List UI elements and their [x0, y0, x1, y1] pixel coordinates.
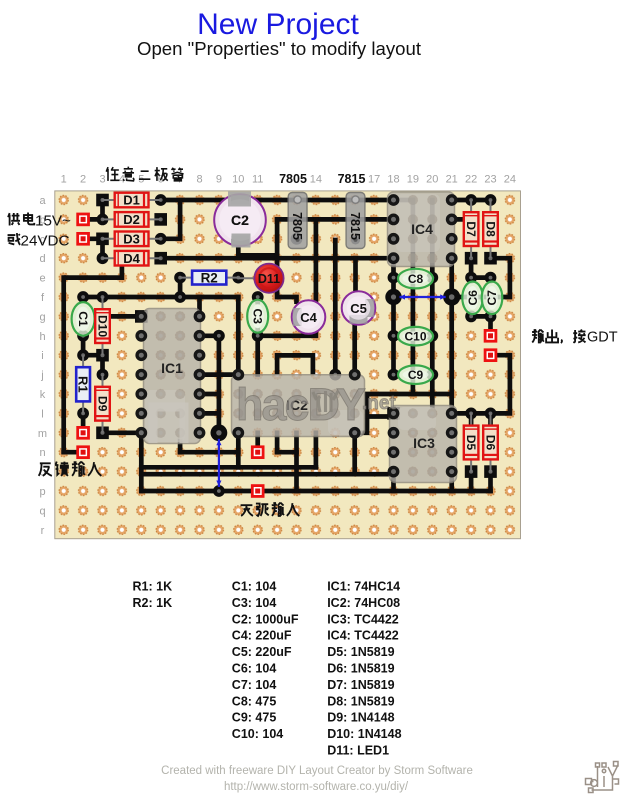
svg-text:7815: 7815 — [338, 172, 366, 186]
svg-text:C5: C5 — [350, 301, 367, 316]
svg-text:C1: C1 — [76, 311, 90, 327]
svg-text:D1: D1 — [123, 193, 140, 208]
svg-text:D9: D9 — [95, 396, 109, 412]
svg-text:D5: 1N5819: D5: 1N5819 — [327, 645, 394, 659]
svg-text:22: 22 — [465, 174, 477, 186]
svg-text:D9: 1N4148: D9: 1N4148 — [327, 711, 394, 725]
svg-text:R2: 1K: R2: 1K — [133, 596, 173, 610]
svg-text:D2: D2 — [123, 212, 140, 227]
svg-text:D10: 1N4148: D10: 1N4148 — [327, 727, 401, 741]
svg-text:IC4: IC4 — [411, 221, 433, 237]
svg-text:i: i — [41, 350, 43, 362]
svg-text:IC3: TC4422: IC3: TC4422 — [327, 612, 399, 626]
svg-text:D8: 1N5819: D8: 1N5819 — [327, 694, 394, 708]
svg-text:C2: C2 — [231, 212, 249, 228]
svg-text:19: 19 — [407, 174, 419, 186]
svg-text:C6: C6 — [466, 290, 480, 306]
svg-text:D11: LED1: D11: LED1 — [327, 744, 389, 758]
svg-text:23: 23 — [484, 174, 496, 186]
svg-text:h: h — [39, 331, 45, 343]
svg-text:1: 1 — [61, 174, 67, 186]
svg-text:a: a — [39, 195, 46, 207]
svg-text:C10: C10 — [404, 329, 426, 343]
svg-text:C9: C9 — [408, 368, 424, 382]
svg-text:C2: 1000uF: C2: 1000uF — [232, 612, 299, 626]
svg-text:http://www.storm-software.co.y: http://www.storm-software.co.yu/diy/ — [224, 781, 409, 793]
svg-text:8: 8 — [196, 174, 202, 186]
svg-text:D7: 1N5819: D7: 1N5819 — [327, 678, 394, 692]
svg-text:10: 10 — [232, 174, 244, 186]
svg-text:q: q — [39, 505, 45, 517]
svg-text:k: k — [40, 389, 46, 401]
svg-text:C6: 104: C6: 104 — [232, 662, 277, 676]
svg-text:m: m — [38, 428, 47, 440]
svg-text:D7: D7 — [464, 221, 478, 237]
svg-text:7805: 7805 — [279, 172, 307, 186]
svg-text:d: d — [39, 253, 45, 265]
svg-text:7805: 7805 — [290, 212, 304, 240]
svg-text:D6: D6 — [483, 435, 497, 451]
svg-text:.net: .net — [362, 393, 396, 414]
svg-text:IC2: 74HC08: IC2: 74HC08 — [327, 596, 400, 610]
svg-text:21: 21 — [446, 174, 458, 186]
svg-text:C1: 104: C1: 104 — [232, 580, 277, 594]
svg-text:15V~: 15V~ — [35, 213, 71, 230]
svg-text:IC1: 74HC14: IC1: 74HC14 — [327, 580, 400, 594]
svg-text:R1: R1 — [76, 376, 91, 393]
svg-text:20: 20 — [426, 174, 438, 186]
svg-text:C4: 220uF: C4: 220uF — [232, 629, 292, 643]
svg-text:R2: R2 — [201, 270, 218, 285]
svg-text:l: l — [41, 408, 43, 420]
svg-text:D8: D8 — [483, 221, 497, 237]
svg-text:C5: 220uF: C5: 220uF — [232, 645, 292, 659]
svg-text:R1: 1K: R1: 1K — [133, 580, 173, 594]
svg-text:24: 24 — [504, 174, 516, 186]
svg-text:C7: C7 — [485, 290, 499, 306]
svg-text:IC1: IC1 — [161, 360, 183, 376]
svg-text:hacD: hacD — [236, 379, 339, 430]
svg-text:IC4: TC4422: IC4: TC4422 — [327, 629, 399, 643]
svg-text:f: f — [41, 292, 45, 304]
svg-text:C3: 104: C3: 104 — [232, 596, 277, 610]
svg-text:D4: D4 — [123, 251, 140, 266]
svg-text:IC3: IC3 — [413, 435, 435, 451]
svg-text:g: g — [39, 311, 45, 323]
svg-text:C10: 104: C10: 104 — [232, 727, 283, 741]
svg-text:r: r — [41, 525, 45, 537]
svg-text:GDT: GDT — [587, 330, 618, 346]
svg-text:C8: 475: C8: 475 — [232, 694, 277, 708]
svg-text:e: e — [39, 273, 45, 285]
svg-text:D3: D3 — [123, 231, 140, 246]
svg-text:C3: C3 — [251, 309, 265, 325]
svg-text:n: n — [39, 447, 45, 459]
svg-text:D6: 1N5819: D6: 1N5819 — [327, 662, 394, 676]
svg-text:14: 14 — [310, 174, 322, 186]
svg-text:New Project: New Project — [197, 8, 359, 41]
svg-text:3: 3 — [99, 174, 105, 186]
svg-text:18: 18 — [387, 174, 399, 186]
svg-text:7815: 7815 — [348, 212, 362, 240]
svg-text:Open "Properties" to modify la: Open "Properties" to modify layout — [137, 38, 422, 59]
svg-text:17: 17 — [368, 174, 380, 186]
svg-text:C8: C8 — [408, 272, 424, 286]
svg-text:D10: D10 — [95, 315, 109, 337]
svg-text:C9: 475: C9: 475 — [232, 711, 277, 725]
svg-text:C4: C4 — [300, 310, 317, 325]
svg-text:p: p — [39, 486, 45, 498]
svg-text:2: 2 — [80, 174, 86, 186]
svg-text:9: 9 — [216, 174, 222, 186]
svg-text:C7: 104: C7: 104 — [232, 678, 277, 692]
svg-text:D5: D5 — [464, 435, 478, 451]
svg-text:24VDC: 24VDC — [21, 233, 70, 250]
svg-text:Created with freeware DIY Layo: Created with freeware DIY Layout Creator… — [161, 765, 473, 777]
svg-text:11: 11 — [252, 174, 263, 186]
svg-text:D11: D11 — [258, 272, 280, 286]
svg-text:j: j — [40, 370, 43, 382]
